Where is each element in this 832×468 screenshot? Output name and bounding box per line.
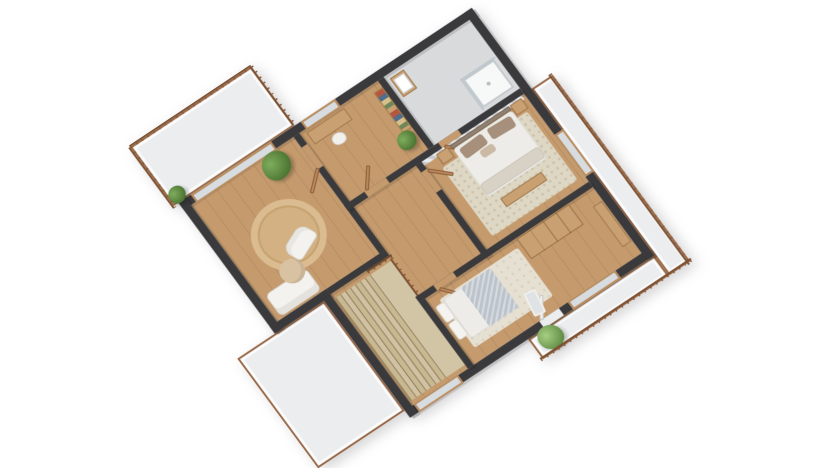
floorplan-render-canvas [0, 0, 832, 468]
